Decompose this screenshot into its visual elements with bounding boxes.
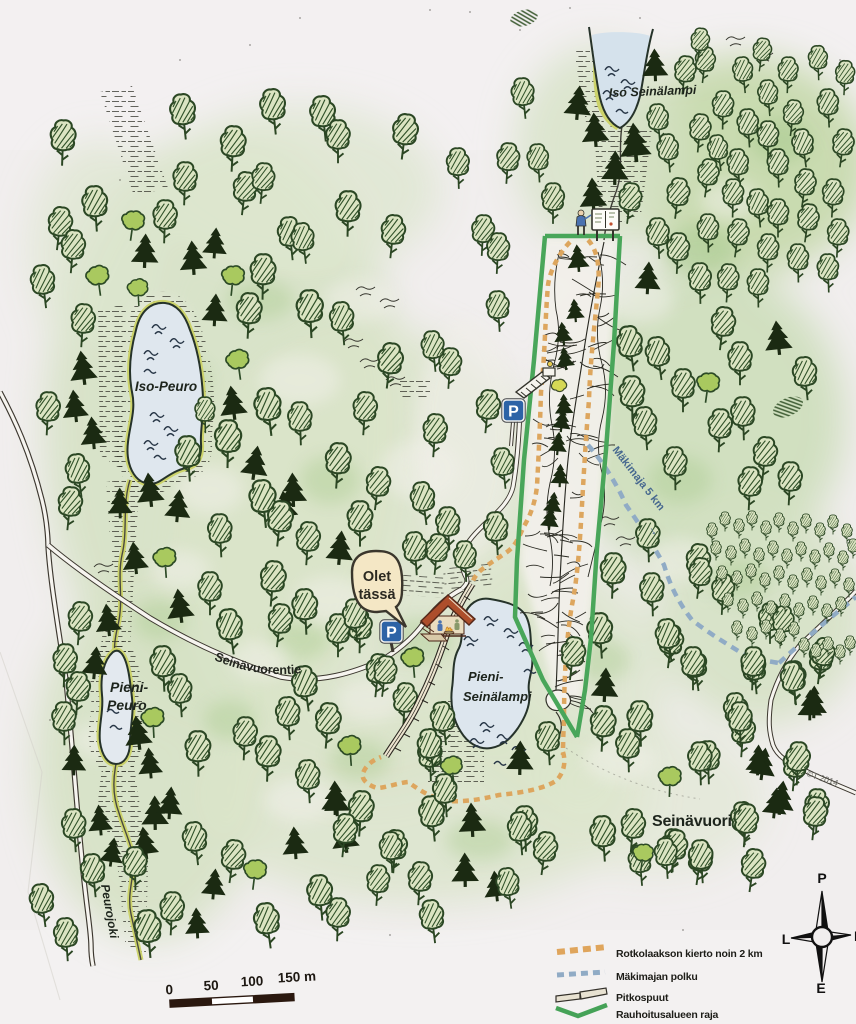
svg-text:P: P: [386, 625, 397, 642]
svg-text:Mäkimajan polku: Mäkimajan polku: [616, 971, 698, 983]
svg-text:L: L: [782, 931, 791, 947]
svg-text:tässä: tässä: [358, 587, 396, 603]
svg-text:P: P: [508, 404, 519, 421]
svg-text:Iso-Peuro: Iso-Peuro: [135, 379, 197, 394]
svg-text:Rauhoitusalueen raja: Rauhoitusalueen raja: [616, 1009, 719, 1021]
svg-text:Pitkospuut: Pitkospuut: [616, 992, 669, 1004]
svg-text:50: 50: [203, 978, 219, 994]
svg-text:Peuro: Peuro: [107, 697, 147, 713]
svg-text:100: 100: [240, 973, 263, 989]
svg-text:Olet: Olet: [363, 569, 391, 585]
svg-text:Pieni-: Pieni-: [110, 679, 148, 695]
svg-text:0: 0: [165, 982, 173, 997]
svg-text:Rotkolaakson kierto noin 2 km: Rotkolaakson kierto noin 2 km: [616, 948, 763, 960]
svg-text:Pieni-: Pieni-: [468, 669, 503, 684]
svg-text:150 m: 150 m: [277, 968, 316, 985]
svg-text:Seinälampi: Seinälampi: [463, 689, 532, 704]
svg-text:E: E: [816, 980, 825, 996]
svg-text:Seinävuori: Seinävuori: [652, 813, 732, 830]
svg-text:P: P: [817, 870, 826, 886]
